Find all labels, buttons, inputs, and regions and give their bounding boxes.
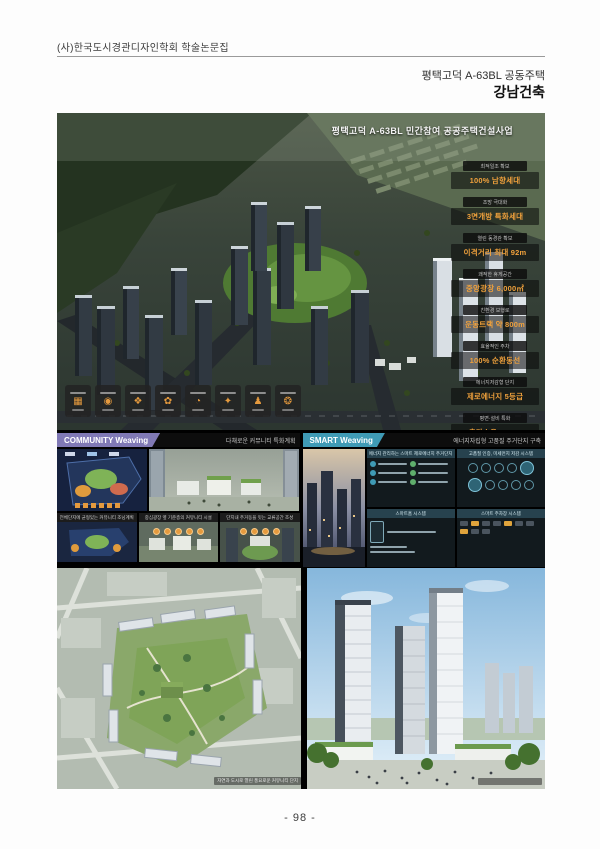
header-divider (57, 56, 545, 57)
aerial-render-caption: 자연과 도시로 열린 풍요로운 커뮤니티 단지 (214, 777, 301, 785)
stat-box: 효율적인 주차100% 순환동선 (451, 341, 539, 369)
street-level-render (307, 568, 545, 789)
badge-icon: ✦ (215, 385, 241, 417)
street-render-caption (478, 778, 542, 785)
stat-box: 에너지저감형 단지제로에너지 5등급 (451, 377, 539, 405)
author-name: 강남건축 (493, 82, 545, 102)
dusk-towers-render (303, 449, 365, 567)
community-caption-1: 전체단지에 균형있는 커뮤니티 조닝계획 (57, 513, 137, 522)
smart-home-panel: 스마트홈 시스템 (367, 509, 455, 567)
stat-box: 평면·설비 특화층간소음 ZERO (451, 413, 539, 430)
stat-box: 조망 극대화3면개방 특화세대 (451, 197, 539, 225)
smart-tagline: 에너지자립형 고품질 주거단지 구축 (453, 436, 545, 445)
amenity-dots (139, 528, 219, 535)
site-plan-icon: ▦ (65, 385, 91, 417)
smart-header: SMART Weaving 에너지자립형 고품질 주거단지 구축 (303, 433, 546, 447)
presentation-board: 평택고덕 A-63BL 민간참여 공공주택건설사업 최적일조 확보100% 남향… (57, 113, 545, 789)
community-tagline: 다채로운 커뮤니티 특화계획 (226, 436, 300, 445)
clock-icon: ◔ (185, 385, 211, 417)
theme-sections: COMMUNITY Weaving 다채로운 커뮤니티 특화계획 (57, 433, 545, 567)
stat-box: 최적일조 확보100% 남향세대 (451, 161, 539, 189)
board-title: 평택고덕 A-63BL 민간참여 공공주택건설사업 (332, 124, 513, 137)
community-plaza-render (149, 449, 300, 511)
amenity-dots (220, 528, 300, 535)
bottom-renders: 자연과 도시로 열린 풍요로운 커뮤니티 단지 (57, 568, 545, 789)
key-stats-column: 최적일조 확보100% 남향세대 조망 극대화3면개방 특화세대 열린 동경관 … (451, 161, 539, 430)
proceedings-page: (사)한국도시경관디자인학회 학술논문집 평택고덕 A-63BL 공동주택 강남… (0, 0, 600, 849)
community-card-2: 중심광장 옆 기준층의 커뮤니티 시설 (139, 513, 219, 567)
aerial-campus-render: 자연과 도시로 열린 풍요로운 커뮤니티 단지 (57, 568, 304, 789)
community-card-1: 전체단지에 균형있는 커뮤니티 조닝계획 (57, 513, 137, 567)
stat-box: 쾌적한 휴게공간중앙광장 6,000㎡ (451, 269, 539, 297)
community-section: COMMUNITY Weaving 다채로운 커뮤니티 특화계획 (57, 433, 300, 567)
stat-box: 열린 동경관 확보이격거리 최대 92m (451, 233, 539, 261)
community-header: COMMUNITY Weaving 다채로운 커뮤니티 특화계획 (57, 433, 300, 447)
project-subtitle: 평택고덕 A-63BL 공동주택 (422, 67, 545, 83)
community-caption-3: 단지내 주거동을 잇는 교류공간 조성 (220, 513, 300, 522)
feature-icon-strip: ▦ ◉ ❖ ✿ ◔ ✦ ♟ ❂ (65, 385, 301, 417)
community-card-3: 단지내 주거동을 잇는 교류공간 조성 (220, 513, 300, 567)
leaf-icon: ✿ (155, 385, 181, 417)
stat-box: 친환경 보행로운동트랙 약 800m (451, 305, 539, 333)
burst-icon: ❂ (275, 385, 301, 417)
smart-section: SMART Weaving 에너지자립형 고품질 주거단지 구축 (303, 433, 546, 567)
zero-energy-panel: 에너지 관리하는 스마트 제로에너지 주거단지 (367, 449, 455, 507)
globe-icon: ❖ (125, 385, 151, 417)
community-caption-2: 중심광장 옆 기준층의 커뮤니티 시설 (139, 513, 219, 522)
person-icon: ♟ (245, 385, 271, 417)
aerial-masterplan-render: 평택고덕 A-63BL 민간참여 공공주택건설사업 최적일조 확보100% 남향… (57, 113, 545, 430)
community-zoning-diagram (57, 449, 147, 511)
journal-header: (사)한국도시경관디자인학회 학술논문집 (57, 39, 229, 54)
coin-icon: ◉ (95, 385, 121, 417)
page-number: - 98 - (0, 812, 600, 824)
smart-parking-panel: 스마트 주차장 시스템 (457, 509, 545, 567)
smart-badge: SMART Weaving (303, 433, 385, 447)
community-badge: COMMUNITY Weaving (57, 433, 160, 447)
air-quality-panel: 고품질 인증, 미세먼지 저감 시스템 (457, 449, 545, 507)
